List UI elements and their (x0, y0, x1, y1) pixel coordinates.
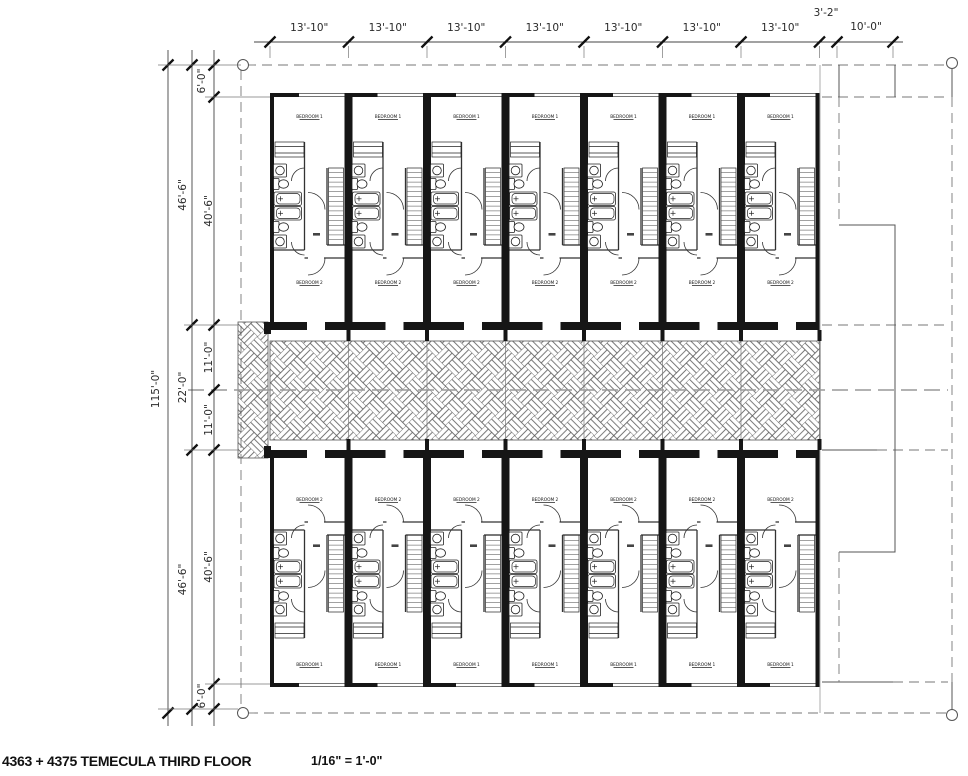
dimension-label: 3'-2" (814, 7, 839, 19)
dimension-label: 115'-0" (150, 370, 162, 408)
dimension-label: 22'-0" (177, 372, 189, 404)
dimension-label: BEDROOM 1 (532, 114, 559, 120)
dimension-label: BEDROOM 2 (767, 280, 794, 286)
units-top-row (270, 93, 820, 330)
dimension-label: 13'-10" (290, 22, 328, 34)
drawing-sheet: BEDROOM 1BEDROOM 2BEDROOM 2BEDROOM 1BEDR… (0, 0, 968, 776)
sheet-scale: 1/16" = 1'-0" (311, 754, 382, 768)
dimension-label: 40'-6" (203, 195, 215, 227)
dimension-label: BEDROOM 1 (767, 662, 794, 668)
units-bottom-row (270, 450, 820, 687)
dimension-label: BEDROOM 1 (610, 114, 637, 120)
dimension-label: BEDROOM 2 (296, 280, 323, 286)
dimension-label: BEDROOM 2 (610, 280, 637, 286)
dimension-label: BEDROOM 2 (375, 280, 402, 286)
dimension-label: 40'-6" (203, 551, 215, 583)
dimension-label: 13'-10" (683, 22, 721, 34)
dimension-label: BEDROOM 2 (532, 497, 559, 503)
dimension-label: 13'-10" (604, 22, 642, 34)
sheet-title: 4363 + 4375 TEMECULA THIRD FLOOR (2, 753, 251, 769)
dimension-label: BEDROOM 2 (453, 280, 480, 286)
dimension-label: BEDROOM 1 (453, 662, 480, 668)
dimension-label: 10'-0" (850, 21, 882, 33)
dimension-label: 13'-10" (447, 22, 485, 34)
dimension-label: 11'-0" (203, 342, 215, 374)
dimension-label: 11'-0" (203, 404, 215, 436)
grid-bubble (947, 58, 958, 69)
dimension-label: BEDROOM 2 (375, 497, 402, 503)
dimension-label: BEDROOM 2 (689, 280, 716, 286)
dimension-label: BEDROOM 1 (689, 114, 716, 120)
dimension-label: BEDROOM 1 (375, 662, 402, 668)
dimension-label: BEDROOM 2 (689, 497, 716, 503)
dimension-label: 6'-0" (196, 684, 208, 709)
grid-bubble (947, 710, 958, 721)
dimension-label: BEDROOM 2 (532, 280, 559, 286)
dimension-label: 6'-0" (196, 69, 208, 94)
dimension-label: BEDROOM 2 (453, 497, 480, 503)
floor-plan-drawing: BEDROOM 1BEDROOM 2BEDROOM 2BEDROOM 1BEDR… (0, 0, 968, 748)
dimension-label: BEDROOM 1 (767, 114, 794, 120)
title-block: 4363 + 4375 TEMECULA THIRD FLOOR 1/16" =… (0, 751, 968, 775)
grid-bubble (238, 708, 249, 719)
dimension-label: BEDROOM 1 (610, 662, 637, 668)
corridor-hatch (188, 322, 948, 458)
dimension-label: 46'-6" (177, 179, 189, 211)
dimension-label: BEDROOM 2 (296, 497, 323, 503)
dimension-label: BEDROOM 1 (296, 662, 323, 668)
dimension-label: BEDROOM 1 (689, 662, 716, 668)
dimension-label: BEDROOM 1 (375, 114, 402, 120)
dimension-label: 13'-10" (761, 22, 799, 34)
dimension-label: 13'-10" (369, 22, 407, 34)
dimension-label: BEDROOM 1 (532, 662, 559, 668)
top-dimensions: 13'-10"13'-10"13'-10"13'-10"13'-10"13'-1… (254, 7, 903, 58)
dimension-label: BEDROOM 1 (453, 114, 480, 120)
dimension-label: BEDROOM 2 (610, 497, 637, 503)
dimension-label: BEDROOM 2 (767, 497, 794, 503)
dimension-label: BEDROOM 1 (296, 114, 323, 120)
dimension-label: 13'-10" (526, 22, 564, 34)
dimension-label: 46'-6" (177, 564, 189, 596)
